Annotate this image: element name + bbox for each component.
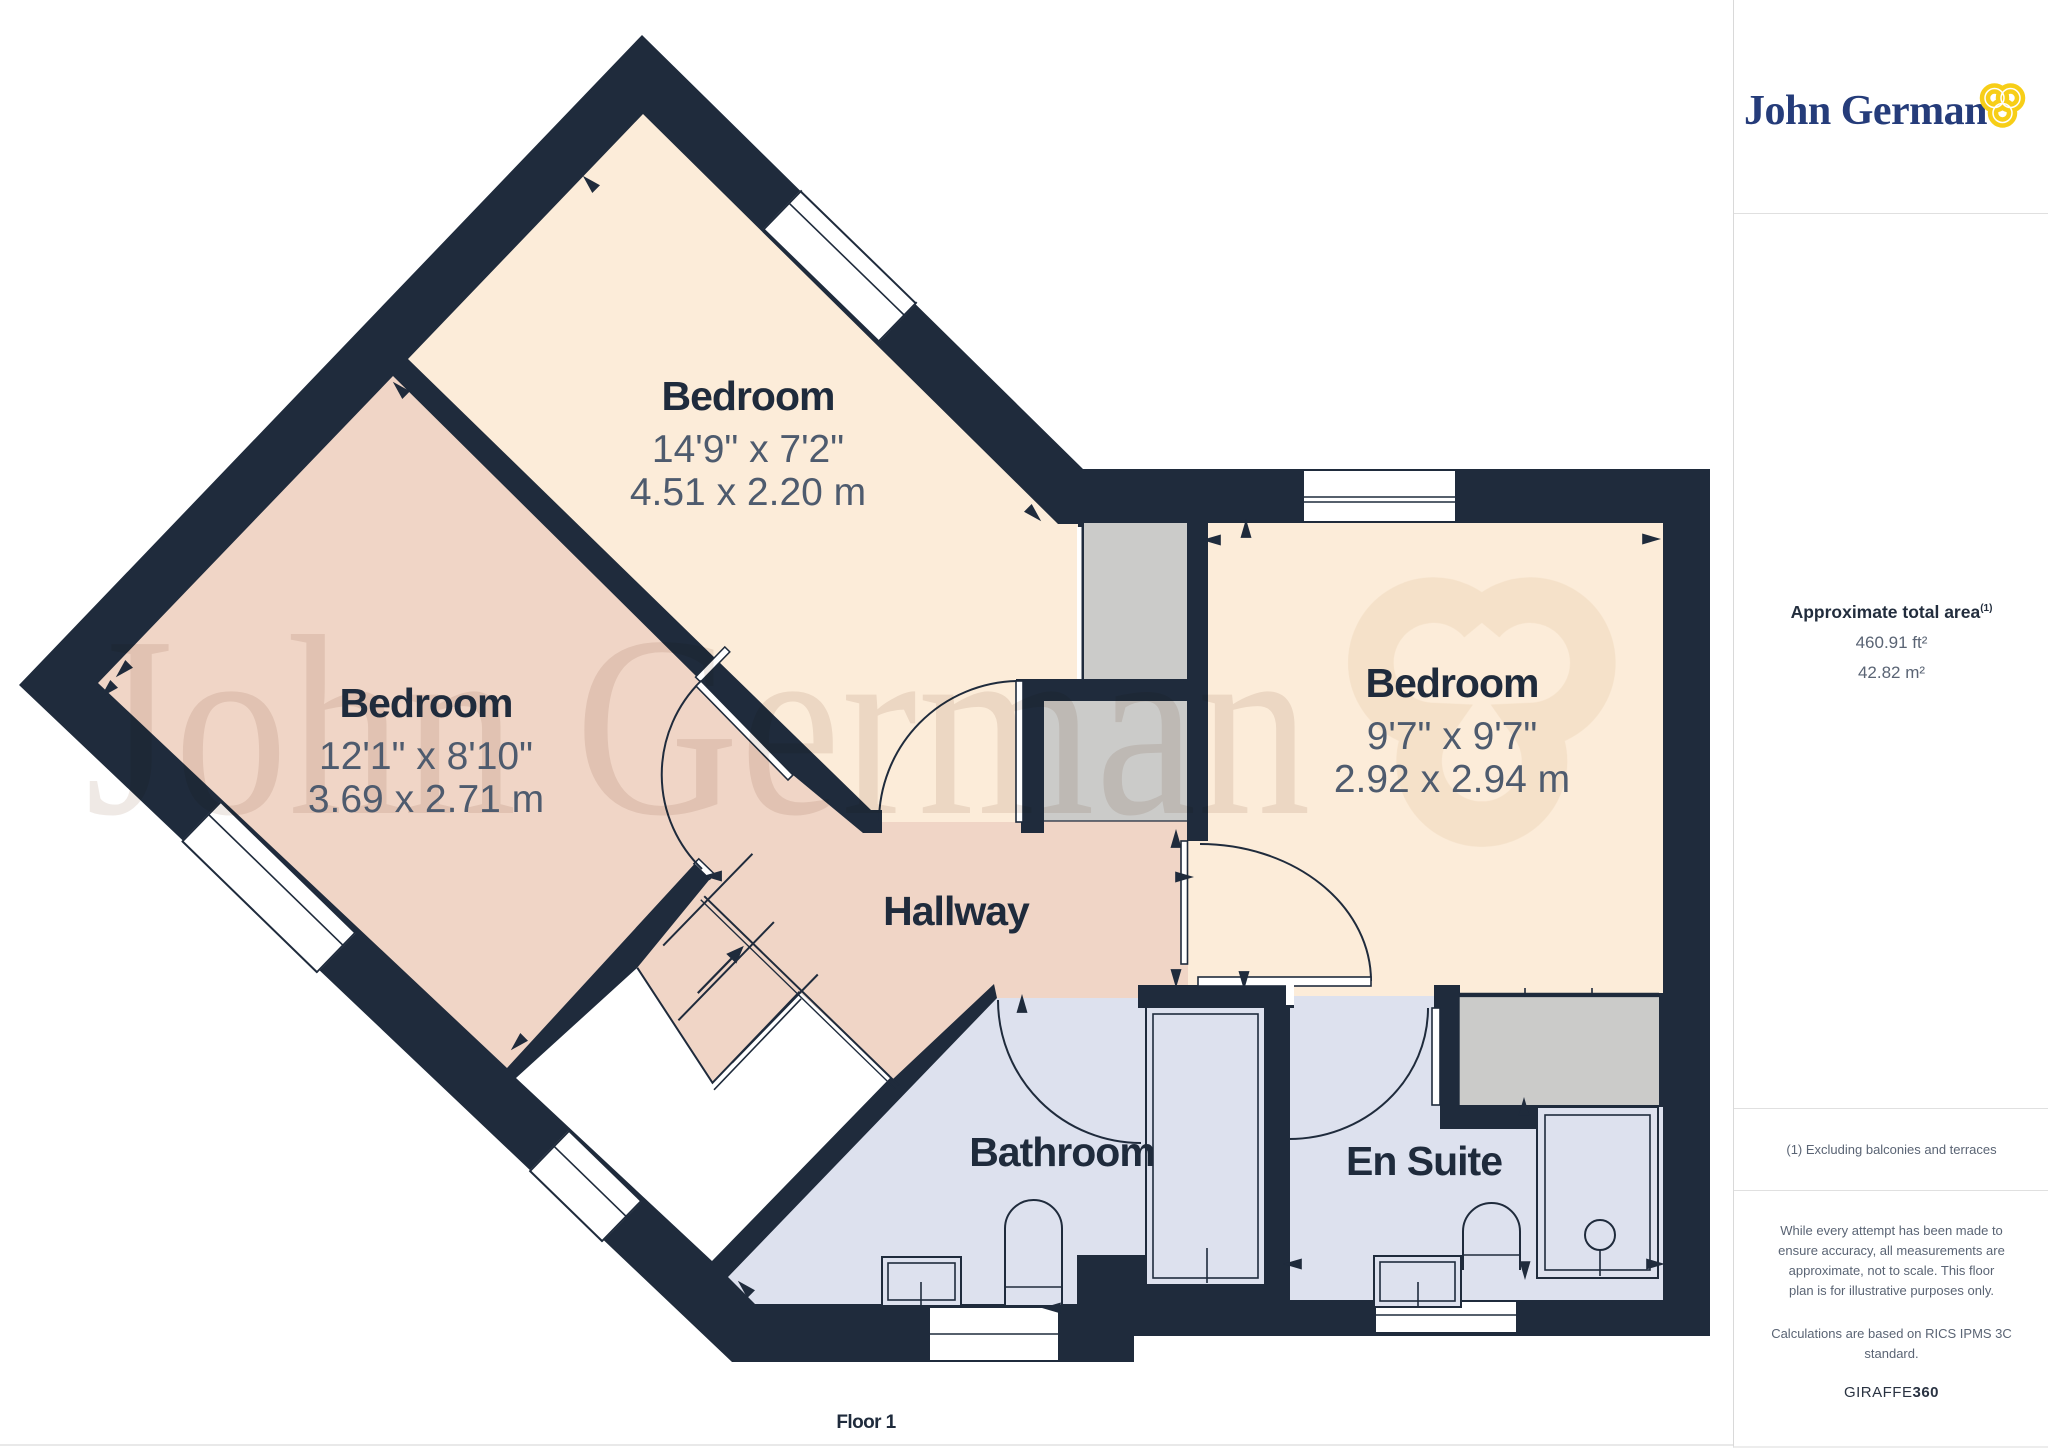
svg-text:Floor 1: Floor 1 xyxy=(836,1412,896,1433)
svg-text:3.69 x 2.71 m: 3.69 x 2.71 m xyxy=(308,778,544,821)
svg-text:En Suite: En Suite xyxy=(1346,1138,1502,1184)
svg-text:John German: John German xyxy=(85,583,1312,870)
svg-text:9'7" x 9'7": 9'7" x 9'7" xyxy=(1367,715,1538,758)
svg-text:Bedroom: Bedroom xyxy=(1366,660,1539,706)
svg-text:2.92 x 2.94 m: 2.92 x 2.94 m xyxy=(1334,758,1570,801)
svg-text:12'1" x 8'10": 12'1" x 8'10" xyxy=(319,735,533,778)
svg-text:Bathroom: Bathroom xyxy=(969,1129,1155,1175)
svg-text:4.51 x 2.20 m: 4.51 x 2.20 m xyxy=(630,471,866,514)
svg-text:Hallway: Hallway xyxy=(883,888,1030,934)
svg-text:Bedroom: Bedroom xyxy=(662,373,835,419)
svg-text:14'9" x 7'2": 14'9" x 7'2" xyxy=(652,428,844,471)
svg-text:Bedroom: Bedroom xyxy=(340,680,513,726)
